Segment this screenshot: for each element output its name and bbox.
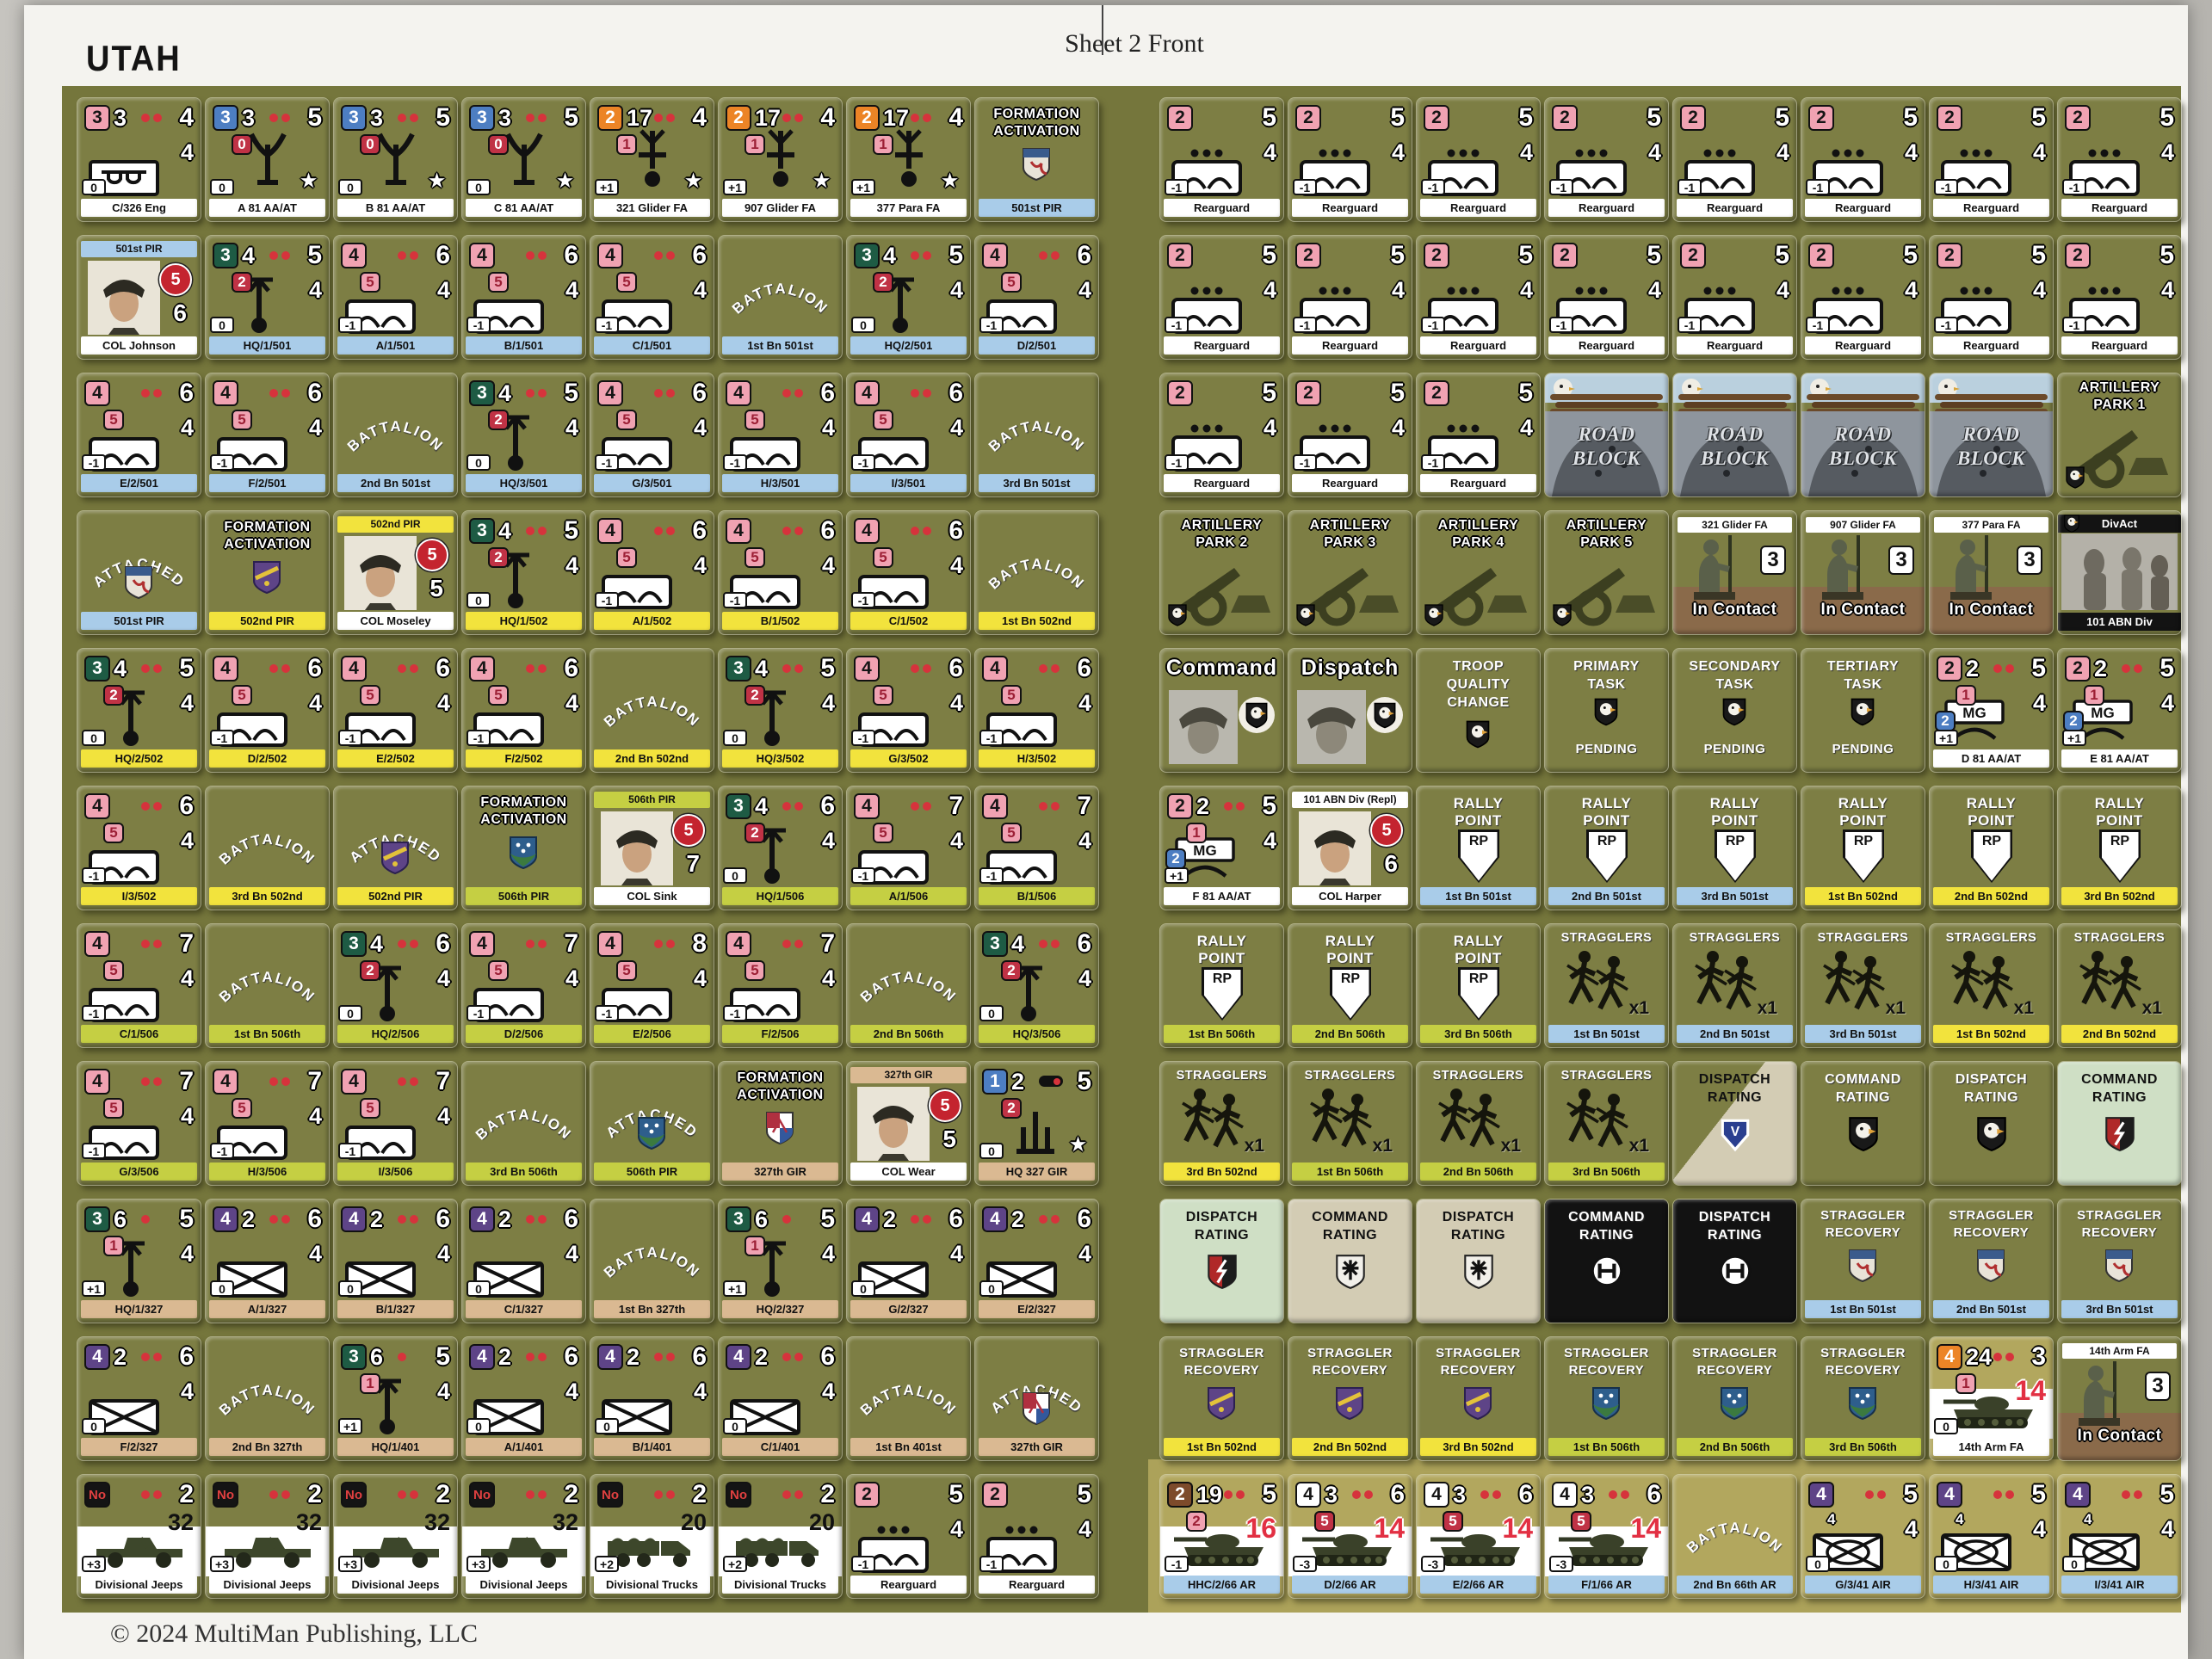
counter-1st-bn-501st[interactable]: STRAGGLERRECOVERY1st Bn 501st [1801, 1200, 1925, 1323]
counter-park-4[interactable]: ARTILLERYPARK 4 [1417, 511, 1540, 634]
ammo-dots-icon [398, 662, 422, 677]
value-box-4: 4 [341, 656, 367, 681]
modifier-box: -1 [82, 1143, 106, 1159]
counter-327th-gir[interactable]: ATTACHED327th GIR [975, 1337, 1098, 1460]
ammo-dots-icon [398, 111, 422, 126]
counter-502nd-pir[interactable]: FORMATIONACTIVATION502nd PIR [206, 511, 329, 634]
rally-title: RALLY [1288, 933, 1412, 950]
value-box-2: 2 [1937, 105, 1962, 131]
counter-f-2-327[interactable]: 42640F/2/327 [77, 1337, 201, 1460]
counter-1st-bn-502nd[interactable]: RALLYPOINTRP1st Bn 502nd [1801, 786, 1925, 910]
value-box-2: 2 [1424, 243, 1449, 268]
counter-377-para-fa[interactable]: 21714★+1377 Para FA [847, 98, 970, 221]
unit-label: HQ/3/506 [979, 1025, 1095, 1043]
task-title2: TASK [1801, 677, 1925, 693]
counter-rearguard[interactable]: 254-1Rearguard [1417, 373, 1540, 496]
movement-value: 4 [950, 1516, 963, 1543]
counter-506th-pir[interactable]: FORMATIONACTIVATION506th PIR [462, 786, 585, 910]
movement-value: 4 [565, 1378, 578, 1405]
ammo-dots-icon [911, 662, 935, 677]
unit-label: 377 Para FA [850, 199, 967, 217]
counter-rearguard[interactable]: 254-1Rearguard [1545, 236, 1668, 359]
counter-rearguard[interactable]: 254-1Rearguard [2058, 98, 2181, 221]
counter-1st-bn-401st[interactable]: BATTALION1st Bn 401st [847, 1337, 970, 1460]
counter-1st-bn-502nd[interactable]: STRAGGLERRECOVERY1st Bn 502nd [1160, 1337, 1283, 1460]
counter-rearguard[interactable]: 254-1Rearguard [1160, 98, 1283, 221]
counter-col-sink[interactable]: 506th PIR57COL Sink [590, 786, 714, 910]
counter-1st-bn-502nd[interactable]: BATTALION1st Bn 502nd [975, 511, 1098, 634]
unit-label: Rearguard [1548, 199, 1665, 217]
counter-rearguard[interactable]: 254-1Rearguard [1801, 236, 1925, 359]
counter-dispatch[interactable]: DISPATCHRATING [1417, 1200, 1540, 1323]
counter-park-5[interactable]: ARTILLERYPARK 5 [1545, 511, 1668, 634]
counter-h-3-502[interactable]: 4564-1H/3/502 [975, 649, 1098, 772]
counter-2nd-bn-66th-ar[interactable]: BATTALION2nd Bn 66th AR [1673, 1475, 1796, 1598]
counter-b-1-501[interactable]: 4564-1B/1/501 [462, 236, 585, 359]
counter-1st-bn-506th[interactable]: BATTALION1st Bn 506th [206, 924, 329, 1047]
strength-value: 6 [436, 654, 450, 683]
counter-divisional-jeeps[interactable]: No232+3Divisional Jeeps [77, 1475, 201, 1598]
ammo-dots-icon [1480, 1488, 1505, 1503]
modifier-box: -1 [1293, 179, 1317, 195]
recovery-title2: RECOVERY [2058, 1225, 2181, 1240]
counter-i-3-501[interactable]: 4564-1I/3/501 [847, 373, 970, 496]
ammo-dots-icon [911, 799, 935, 815]
counter-f-81-aa-at[interactable]: MG221254+1F 81 AA/AT [1160, 786, 1283, 910]
counter-c-1-506[interactable]: 4574-1C/1/506 [77, 924, 201, 1047]
counter-park-2[interactable]: ARTILLERYPARK 2 [1160, 511, 1283, 634]
counter-3rd-bn-502nd[interactable]: BATTALION3rd Bn 502nd [206, 786, 329, 910]
strength-value: 6 [564, 654, 578, 683]
strength-value: 6 [307, 1205, 322, 1234]
ammo-dots-icon [782, 662, 806, 677]
counter-rearguard[interactable]: 254-1Rearguard [1417, 98, 1540, 221]
counter-dispatch[interactable]: DISPATCHRATING [1160, 1200, 1283, 1323]
counter-hq-3-506[interactable]: 342640HQ/3/506 [975, 924, 1098, 1047]
stragglers-title: STRAGGLERS [1673, 931, 1796, 945]
counter-block[interactable]: ROADBLOCK [1673, 373, 1796, 496]
counter-2nd-bn-506th[interactable]: STRAGGLERSx12nd Bn 506th [1417, 1062, 1540, 1185]
counter-a-1-506[interactable]: 4574-1A/1/506 [847, 786, 970, 910]
counter-f-2-502[interactable]: 4564-1F/2/502 [462, 649, 585, 772]
counter-2nd-bn-502nd[interactable]: STRAGGLERRECOVERY2nd Bn 502nd [1288, 1337, 1412, 1460]
rally-title: RALLY [1673, 795, 1796, 812]
top-value: 3 [1581, 1482, 1594, 1508]
counter-hq-2-327[interactable]: 36154+1HQ/2/327 [719, 1200, 842, 1323]
rating-title2: RATING [1545, 1228, 1668, 1243]
counter-d-81-aa-at[interactable]: MG221254+1D 81 AA/AT [1930, 649, 2053, 772]
unit-label: B/1/502 [722, 612, 838, 630]
counter-park-1[interactable]: ARTILLERYPARK 1 [2058, 373, 2181, 496]
rally-title2: POINT [1801, 812, 1925, 829]
counter-2nd-bn-501st[interactable]: RALLYPOINTRP2nd Bn 501st [1545, 786, 1668, 910]
counter-hq-1-401[interactable]: 36154+1HQ/1/401 [334, 1337, 457, 1460]
movement-value: 4 [1078, 1241, 1091, 1267]
counter-327th-gir[interactable]: FORMATIONACTIVATION327th GIR [719, 1062, 842, 1185]
strength-value: 7 [436, 1067, 450, 1096]
top-value: 4 [1011, 931, 1024, 958]
value-box-2: 2 [2065, 656, 2091, 681]
unit-label: C/1/501 [594, 336, 710, 355]
unit-label: Divisional Trucks [594, 1576, 710, 1594]
modifier-box: -3 [1549, 1556, 1573, 1572]
unit-label: B/1/506 [979, 887, 1095, 905]
ammo-dots-icon [911, 249, 935, 264]
counter-3rd-bn-501st[interactable]: BATTALION3rd Bn 501st [975, 373, 1098, 496]
modifier-box: -1 [466, 730, 491, 746]
counter-e-2-502[interactable]: 4564-1E/2/502 [334, 649, 457, 772]
counter-3rd-bn-502nd[interactable]: STRAGGLERRECOVERY3rd Bn 502nd [1417, 1337, 1540, 1460]
roadblock-title2: BLOCK [1930, 447, 2053, 470]
counter-b-81-aa-at[interactable]: 3305★0B 81 AA/AT [334, 98, 457, 221]
counter-3rd-bn-501st[interactable]: STRAGGLERRECOVERY3rd Bn 501st [2058, 1200, 2181, 1323]
counter-3rd-bn-501st[interactable]: RALLYPOINTRP3rd Bn 501st [1673, 786, 1796, 910]
unit-label: F/2/502 [466, 749, 582, 768]
counter-hq-327-gir[interactable]: 1225★0HQ 327 GIR [975, 1062, 1098, 1185]
counter-dispatch[interactable]: DISPATCHRATING [1673, 1200, 1796, 1323]
rally-label: 2nd Bn 501st [1548, 887, 1665, 905]
counter-rearguard[interactable]: 254-1Rearguard [1160, 373, 1283, 496]
leader-portrait [1299, 811, 1371, 885]
counter-a-81-aa-at[interactable]: 3305★0A 81 AA/AT [206, 98, 329, 221]
counter-a-1-401[interactable]: 42640A/1/401 [462, 1337, 585, 1460]
counter-hhc-2-66-ar[interactable]: 2192516-1HHC/2/66 AR [1160, 1475, 1283, 1598]
counter-c-1-502[interactable]: 4564-1C/1/502 [847, 511, 970, 634]
counter-501st-pir[interactable]: FORMATIONACTIVATION501st PIR [975, 98, 1098, 221]
counter-a-1-502[interactable]: 4564-1A/1/502 [590, 511, 714, 634]
top-value: 3 [1453, 1482, 1466, 1508]
counter-2nd-bn-327th[interactable]: BATTALION2nd Bn 327th [206, 1337, 329, 1460]
modifier-box: -1 [979, 1556, 1004, 1572]
counter-hq-1-327[interactable]: 36154+1HQ/1/327 [77, 1200, 201, 1323]
park-patch-icon [2065, 466, 2085, 490]
contact-title: In Contact [2058, 1427, 2181, 1446]
counter-d-2-506[interactable]: 4574-1D/2/506 [462, 924, 585, 1047]
counter-g-3-501[interactable]: 4564-1G/3/501 [590, 373, 714, 496]
counter-2nd-bn-501st[interactable]: BATTALION2nd Bn 501st [334, 373, 457, 496]
contact-title: In Contact [1801, 601, 1925, 620]
modifier-box: -1 [210, 454, 234, 471]
counter-b-1-327[interactable]: 42640B/1/327 [334, 1200, 457, 1323]
battalion-label: 1st Bn 502nd [979, 612, 1095, 630]
counter-rearguard[interactable]: 254-1Rearguard [1930, 98, 2053, 221]
counter-501st-pir[interactable]: ATTACHED501st PIR [77, 511, 201, 634]
counter-rearguard[interactable]: 254-1Rearguard [1288, 98, 1412, 221]
recovery-label: 1st Bn 506th [1548, 1438, 1665, 1456]
tqc-line: CHANGE [1417, 695, 1540, 711]
counter-2nd-bn-506th[interactable]: RALLYPOINTRP2nd Bn 506th [1288, 924, 1412, 1047]
counter-tertiary[interactable]: TERTIARYTASKPENDING [1801, 649, 1925, 772]
unit-label: C 81 AA/AT [466, 199, 582, 217]
ammo-dots-icon [526, 111, 550, 126]
counter-rearguard[interactable]: 254-1Rearguard [1930, 236, 2053, 359]
rating-title: COMMAND [2058, 1072, 2181, 1088]
counter-hq-1-502[interactable]: 342540HQ/1/502 [462, 511, 585, 634]
counter-1st-bn-502nd[interactable]: STRAGGLERSx11st Bn 502nd [1930, 924, 2053, 1047]
unit-label: HQ/1/506 [722, 887, 838, 905]
value-4: 4 [1827, 1511, 1835, 1528]
counter-hq-1-506[interactable]: 342640HQ/1/506 [719, 786, 842, 910]
counter-divisional-trucks[interactable]: No220+2Divisional Trucks [719, 1475, 842, 1598]
value-box-4: 4 [84, 1069, 110, 1095]
counter-1st-bn-506th[interactable]: STRAGGLERSx11st Bn 506th [1288, 1062, 1412, 1185]
modifier-box: -1 [851, 592, 875, 608]
counter-2nd-bn-502nd[interactable]: BATTALION2nd Bn 502nd [590, 649, 714, 772]
counter-dispatch[interactable]: Dispatch [1288, 649, 1412, 772]
rating-icon-101 [1847, 1115, 1880, 1153]
strength-value: 5 [2031, 241, 2046, 270]
strength-value: 5 [1262, 103, 1276, 133]
movement-value: 4 [822, 552, 835, 579]
counter-h-3-41-air[interactable]: 44540H/3/41 AIR [1930, 1475, 2053, 1598]
value-box-4: 4 [213, 1206, 238, 1232]
counter-2nd-bn-506th[interactable]: BATTALION2nd Bn 506th [847, 924, 970, 1047]
counter-e-2-506[interactable]: 4584-1E/2/506 [590, 924, 714, 1047]
value-box-2: 2 [2065, 105, 2091, 131]
counter-3rd-bn-506th[interactable]: RALLYPOINTRP3rd Bn 506th [1417, 924, 1540, 1047]
leader-rating-circle: 5 [672, 814, 705, 847]
counter-f-2-506[interactable]: 4574-1F/2/506 [719, 924, 842, 1047]
stragglers-mult: x1 [1886, 998, 1906, 1019]
counter-1st-bn-506th[interactable]: RALLYPOINTRP1st Bn 506th [1160, 924, 1283, 1047]
modifier-box: -1 [979, 867, 1004, 884]
left-counter-block: 33440C/326 Eng3305★0A 81 AA/AT3305★0B 81… [77, 98, 1098, 1598]
star-icon: ★ [557, 170, 573, 192]
counter-col-wear[interactable]: 327th GIR55COL Wear [847, 1062, 970, 1185]
counter-907-glider-fa[interactable]: 907 Glider FA3In Contact [1801, 511, 1925, 634]
rating-title2: RATING [1930, 1090, 2053, 1106]
counter-divisional-trucks[interactable]: No220+2Divisional Trucks [590, 1475, 714, 1598]
counter-506th-pir[interactable]: ATTACHED506th PIR [590, 1062, 714, 1185]
counter-dispatch[interactable]: DISPATCHRATINGV [1673, 1062, 1796, 1185]
counter-hq-2-502[interactable]: 342540HQ/2/502 [77, 649, 201, 772]
ammo-dots-icon [1352, 1488, 1376, 1503]
counter-2nd-bn-501st[interactable]: STRAGGLERRECOVERY2nd Bn 501st [1930, 1200, 2053, 1323]
counter-rearguard[interactable]: 254-1Rearguard [975, 1475, 1098, 1598]
counter-block[interactable]: ROADBLOCK [1801, 373, 1925, 496]
counter-rearguard[interactable]: 254-1Rearguard [847, 1475, 970, 1598]
counter-park-3[interactable]: ARTILLERYPARK 3 [1288, 511, 1412, 634]
counter-secondary[interactable]: SECONDARYTASKPENDING [1673, 649, 1796, 772]
counter-b-1-401[interactable]: 42640B/1/401 [590, 1337, 714, 1460]
value-box-5: 5 [488, 685, 509, 706]
rp-pointer-outline: RP [1330, 967, 1371, 1021]
counter-1st-bn-327th[interactable]: BATTALION1st Bn 327th [590, 1200, 714, 1323]
counter-g-2-327[interactable]: 42640G/2/327 [847, 1200, 970, 1323]
recovery-title2: RECOVERY [1673, 1363, 1796, 1378]
top-value: 3 [242, 105, 255, 132]
counter-b-1-506[interactable]: 4574-1B/1/506 [975, 786, 1098, 910]
counter-c-1-327[interactable]: 42640C/1/327 [462, 1200, 585, 1323]
counter-divisional-jeeps[interactable]: No232+3Divisional Jeeps [206, 1475, 329, 1598]
counter-502nd-pir[interactable]: ATTACHED502nd PIR [334, 786, 457, 910]
counter-14th-arm-fa[interactable]: 14th Arm FA3In Contact [2058, 1337, 2181, 1460]
top-value: 4 [498, 518, 511, 545]
value-box-4: 4 [1937, 1344, 1962, 1370]
counter-321-glider-fa[interactable]: 321 Glider FA3In Contact [1673, 511, 1796, 634]
counter-d-2-501[interactable]: 4564-1D/2/501 [975, 236, 1098, 359]
unit-label: D 81 AA/AT [1933, 749, 2049, 768]
rally-title: RALLY [2058, 795, 2181, 812]
strength-value: 7 [564, 929, 578, 959]
strength-value: 5 [2159, 1480, 2174, 1509]
counter-col-moseley[interactable]: 502nd PIR55COL Moseley [334, 511, 457, 634]
counter-321-glider-fa[interactable]: 21714★+1321 Glider FA [590, 98, 714, 221]
modifier-box: 0 [979, 1280, 1004, 1297]
counter-primary[interactable]: PRIMARYTASKPENDING [1545, 649, 1668, 772]
counter-hq-1-501[interactable]: 342540HQ/1/501 [206, 236, 329, 359]
counter-g-3-506[interactable]: 4574-1G/3/506 [77, 1062, 201, 1185]
value-box-4: 4 [854, 656, 880, 681]
formation-label: 506th PIR [594, 1163, 710, 1181]
counter-command[interactable]: COMMANDRATING [2058, 1062, 2181, 1185]
counter-h-3-501[interactable]: 4564-1H/3/501 [719, 373, 842, 496]
counter-hq-2-506[interactable]: 342640HQ/2/506 [334, 924, 457, 1047]
counter-2nd-bn-501st[interactable]: STRAGGLERSx12nd Bn 501st [1673, 924, 1796, 1047]
counter-rearguard[interactable]: 254-1Rearguard [1417, 236, 1540, 359]
counter-2nd-bn-502nd[interactable]: RALLYPOINTRP2nd Bn 502nd [1930, 786, 2053, 910]
value-box-no: No [597, 1482, 623, 1508]
movement-value: 4 [1520, 415, 1533, 441]
leader-formation-band: 101 ABN Div (Repl) [1292, 792, 1408, 808]
counter-divisional-jeeps[interactable]: No232+3Divisional Jeeps [334, 1475, 457, 1598]
battalion-label: 2nd Bn 502nd [594, 749, 710, 768]
counter-1st-bn-506th[interactable]: STRAGGLERRECOVERY1st Bn 506th [1545, 1337, 1668, 1460]
strength-value: 6 [820, 1342, 835, 1372]
counter-e-2-66-ar[interactable]: 435614-3E/2/66 AR [1417, 1475, 1540, 1598]
stragglers-mult: x1 [1629, 1136, 1649, 1156]
counter-divact[interactable]: DivAct101 ABN Div [2058, 511, 2181, 634]
counter-1st-bn-501st[interactable]: BATTALION1st Bn 501st [719, 236, 842, 359]
movement-value: 4 [309, 277, 322, 304]
recovery-patch-icon [1847, 1248, 1878, 1284]
value-box-3: 3 [84, 656, 110, 681]
rally-title2: POINT [1417, 812, 1540, 829]
movement-value: 4 [181, 690, 194, 717]
counter-e-81-aa-at[interactable]: MG221254+1E 81 AA/AT [2058, 649, 2181, 772]
counter-rearguard[interactable]: 254-1Rearguard [2058, 236, 2181, 359]
strength-value: 5 [2159, 103, 2174, 133]
counter-g-3-41-air[interactable]: 44540G/3/41 AIR [1801, 1475, 1925, 1598]
counter-e-2-501[interactable]: 4564-1E/2/501 [77, 373, 201, 496]
unit-label: Divisional Jeeps [81, 1576, 197, 1594]
counter-c-326-eng[interactable]: 33440C/326 Eng [77, 98, 201, 221]
rally-title: RALLY [1417, 933, 1540, 950]
svg-text:BATTALION: BATTALION [601, 694, 703, 731]
value-box-3: 3 [341, 1344, 367, 1370]
counter-3rd-bn-501st[interactable]: STRAGGLERSx13rd Bn 501st [1801, 924, 1925, 1047]
counter-d-2-66-ar[interactable]: 435614-3D/2/66 AR [1288, 1475, 1412, 1598]
rally-label: 1st Bn 502nd [1805, 887, 1921, 905]
counter-rearguard[interactable]: 254-1Rearguard [1801, 98, 1925, 221]
counter-14th-arm-fa[interactable]: 4241314014th Arm FA [1930, 1337, 2053, 1460]
formation-label: 327th GIR [979, 1438, 1095, 1456]
counter-i-3-41-air[interactable]: 44540I/3/41 AIR [2058, 1475, 2181, 1598]
counter-hq-3-502[interactable]: 342540HQ/3/502 [719, 649, 842, 772]
counter-h-3-506[interactable]: 4574-1H/3/506 [206, 1062, 329, 1185]
counter-rearguard[interactable]: 254-1Rearguard [1288, 236, 1412, 359]
counter-d-2-502[interactable]: 4564-1D/2/502 [206, 649, 329, 772]
unit-label: HQ/2/501 [850, 336, 967, 355]
counter-3rd-bn-506th[interactable]: STRAGGLERRECOVERY3rd Bn 506th [1801, 1337, 1925, 1460]
counter-3rd-bn-506th[interactable]: BATTALION3rd Bn 506th [462, 1062, 585, 1185]
leader-name: COL Moseley [337, 612, 454, 630]
counter-g-3-502[interactable]: 4564-1G/3/502 [847, 649, 970, 772]
counter-377-para-fa[interactable]: 377 Para FA3In Contact [1930, 511, 2053, 634]
value-box-2: 2 [1295, 105, 1321, 131]
counter-2nd-bn-506th[interactable]: STRAGGLERRECOVERY2nd Bn 506th [1673, 1337, 1796, 1460]
counter-b-1-502[interactable]: 4564-1B/1/502 [719, 511, 842, 634]
counter-rearguard[interactable]: 254-1Rearguard [1673, 236, 1796, 359]
task-title: TERTIARY [1801, 659, 1925, 675]
counter-3rd-bn-502nd[interactable]: RALLYPOINTRP3rd Bn 502nd [2058, 786, 2181, 910]
movement-value: 4 [1392, 139, 1405, 166]
counter-i-3-502[interactable]: 4564-1I/3/502 [77, 786, 201, 910]
movement-value: 4 [1776, 277, 1789, 304]
counter-1st-bn-501st[interactable]: RALLYPOINTRP1st Bn 501st [1417, 786, 1540, 910]
value-box-4: 4 [84, 931, 110, 957]
value-box-2: 2 [597, 105, 623, 131]
counter-rearguard[interactable]: 254-1Rearguard [1160, 236, 1283, 359]
counter-2nd-bn-502nd[interactable]: STRAGGLERSx12nd Bn 502nd [2058, 924, 2181, 1047]
stragglers-title: STRAGGLERS [1545, 1069, 1668, 1082]
counter-hq-3-501[interactable]: 342540HQ/3/501 [462, 373, 585, 496]
counter-rearguard[interactable]: 254-1Rearguard [1673, 98, 1796, 221]
unit-label: HQ/2/502 [81, 749, 197, 768]
counter-e-2-327[interactable]: 42640E/2/327 [975, 1200, 1098, 1323]
counter-a-1-501[interactable]: 4564-1A/1/501 [334, 236, 457, 359]
counter-i-3-506[interactable]: 4574-1I/3/506 [334, 1062, 457, 1185]
counter-c-1-401[interactable]: 42640C/1/401 [719, 1337, 842, 1460]
unit-label: Rearguard [1933, 199, 2049, 217]
value-box-4: 4 [597, 518, 623, 544]
counter-divisional-jeeps[interactable]: No232+3Divisional Jeeps [462, 1475, 585, 1598]
counter-block[interactable]: ROADBLOCK [1545, 373, 1668, 496]
counter-c-1-501[interactable]: 4564-1C/1/501 [590, 236, 714, 359]
counter-col-harper[interactable]: 101 ABN Div (Repl)56COL Harper [1288, 786, 1412, 910]
modifier-box: -1 [723, 592, 747, 608]
leader-rating-circle: 5 [416, 539, 448, 571]
counter-block[interactable]: ROADBLOCK [1930, 373, 2053, 496]
unit-label: Rearguard [1805, 336, 1921, 355]
value-box-3: 3 [213, 105, 238, 131]
counter-hq-2-501[interactable]: 342540HQ/2/501 [847, 236, 970, 359]
counter-a-1-327[interactable]: 42640A/1/327 [206, 1200, 329, 1323]
counter-3rd-bn-502nd[interactable]: STRAGGLERSx13rd Bn 502nd [1160, 1062, 1283, 1185]
ammo-dots-icon [141, 386, 165, 402]
value-box-4: 4 [341, 1206, 367, 1232]
activation-title2: ACTIVATION [462, 812, 585, 828]
counter-command[interactable]: Command [1160, 649, 1283, 772]
counter-f-2-501[interactable]: 4564-1F/2/501 [206, 373, 329, 496]
counter-3rd-bn-506th[interactable]: STRAGGLERSx13rd Bn 506th [1545, 1062, 1668, 1185]
counter-rearguard[interactable]: 254-1Rearguard [1545, 98, 1668, 221]
counter-f-1-66-ar[interactable]: 435614-3F/1/66 AR [1545, 1475, 1668, 1598]
counter-dispatch[interactable]: DISPATCHRATING [1930, 1062, 2053, 1185]
strength-value: 4 [820, 103, 835, 133]
counter-907-glider-fa[interactable]: 21714★+1907 Glider FA [719, 98, 842, 221]
counter-col-johnson[interactable]: 501st PIR56COL Johnson [77, 236, 201, 359]
rally-title: RALLY [1160, 933, 1283, 950]
counter-command[interactable]: COMMANDRATING [1545, 1200, 1668, 1323]
counter-command[interactable]: COMMANDRATING [1288, 1200, 1412, 1323]
counter-c-81-aa-at[interactable]: 3305★0C 81 AA/AT [462, 98, 585, 221]
contact-value: 3 [1760, 546, 1786, 575]
counter-1st-bn-501st[interactable]: STRAGGLERSx11st Bn 501st [1545, 924, 1668, 1047]
counter-rearguard[interactable]: 254-1Rearguard [1288, 373, 1412, 496]
counter-tqc[interactable]: TROOPQUALITYCHANGE [1417, 649, 1540, 772]
counter-command[interactable]: COMMANDRATING [1801, 1062, 1925, 1185]
